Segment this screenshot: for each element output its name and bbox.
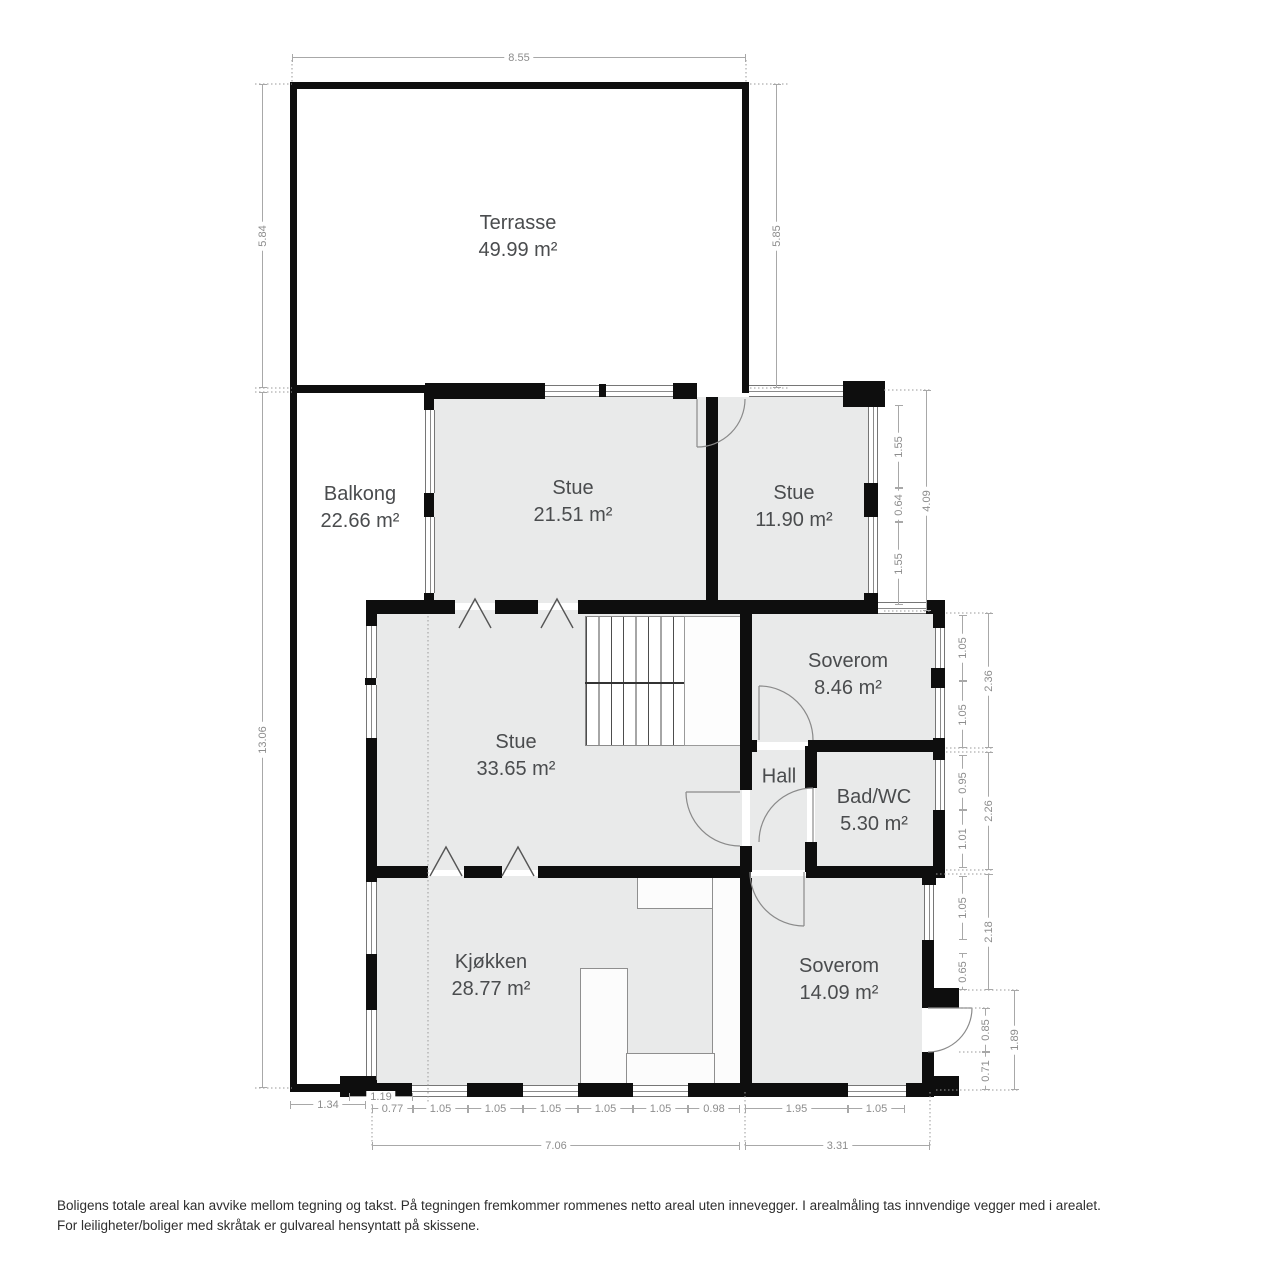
room-name: Hall [762,764,796,791]
dim-stue11-win1: 1.55 [898,405,899,488]
room-name: Soverom [799,953,879,980]
dim-bottom-098: 0.98 [688,1108,740,1109]
label-stue-21: Stue 21.51 m² [534,475,613,529]
dim-bad-win: 0.95 [962,755,963,810]
entry-door-opening [922,1008,934,1052]
wall-top-a [425,383,545,399]
wall-balkong-top [297,385,425,393]
room-area: 22.66 m² [321,508,400,535]
room-name: Stue [755,480,832,507]
wall-divider-stue33-a [740,613,752,790]
room-area: 5.30 m² [837,811,911,838]
wall-divider-stue21-stue11 [706,397,718,613]
dim-entry-total: 1.89 [1014,990,1015,1090]
staircase-divider [585,682,684,684]
kitchen-counter-right [712,877,743,1085]
dim-sov14-wall: 0.65 [962,953,963,990]
wall-right-sov8-mid [931,668,945,688]
dim-bottom-706: 7.06 [372,1145,740,1146]
dim-terrace-left: 5.84 [262,84,263,388]
wall-right-bad-bot [933,810,945,872]
wall-bottom-d [578,1083,633,1097]
wall-bottom-e [688,1083,848,1097]
dim-left-total: 13.06 [262,392,263,1088]
wall-entry-jamb-top [922,988,959,1008]
dim-stue11-total: 4.09 [926,390,927,611]
dim-bottom-105c: 1.05 [523,1108,578,1109]
dim-top: 8.55 [292,57,746,58]
dim-bottom-105f: 1.05 [848,1108,905,1109]
wall-left-bot-b [366,954,377,1010]
dim-bottom-119: 1.19 [349,1096,413,1097]
dim-terrace-right: 5.85 [776,84,777,388]
room-name: Terrasse [479,210,558,237]
wall-hall-bad-a [805,746,817,788]
room-name: Balkong [321,481,400,508]
window-left-mullion [365,678,376,685]
wall-bottom-f [906,1083,934,1097]
kitchen-counter-bottom [626,1053,715,1087]
dim-bottom-105e: 1.05 [633,1108,688,1109]
window-bottom-a [412,1085,467,1097]
wall-terrace-top [290,82,749,89]
window-left-mid-a [366,626,377,678]
room-area: 33.65 m² [477,756,556,783]
wall-stue21-left-a [424,393,434,410]
room-name: Bad/WC [837,784,911,811]
wall-top-b [673,383,697,399]
window-top-stue11 [749,385,843,397]
dim-sov8-win2: 1.05 [962,681,963,748]
wall-mid-b [495,600,538,614]
wall-right-sov8-bot [933,738,945,760]
wall-kjokken-sov14 [740,878,752,1085]
kitchen-counter-top [637,877,715,909]
room-name: Soverom [808,648,888,675]
room-area: 8.46 m² [808,675,888,702]
window-stue11-right-b [868,517,878,593]
dim-entry-below: 0.71 [985,1052,986,1090]
wall-terrace-left [290,82,297,1090]
wall-bottom-c [467,1083,523,1097]
dim-bad-wall: 1.01 [962,810,963,868]
label-stue-11: Stue 11.90 m² [755,480,832,534]
window-stue21-left-a [425,410,435,493]
window-stue21-left-b [425,517,435,593]
label-hall: Hall [762,764,796,791]
room-name: Kjøkken [452,949,531,976]
wall-terrace-right [742,82,749,393]
disclaimer-line-2: For leiligheter/boliger med skråtak er g… [57,1216,1101,1236]
wall-mid-a [366,600,455,614]
door-arc-entry [928,1008,972,1052]
window-bottom-d [848,1085,906,1097]
dim-entry-open: 0.85 [985,1008,986,1052]
wall-mid-e [926,600,945,614]
label-soverom-8: Soverom 8.46 m² [808,648,888,702]
wall-mid-c [578,600,745,614]
window-sov8-right-b [935,688,945,738]
window-left-bot-a [366,882,377,954]
room-name: Stue [534,475,613,502]
staircase-treads [585,616,685,746]
dim-bottom-331: 3.31 [745,1145,930,1146]
wall-stue11-right-mid [864,483,878,517]
dim-bad-total: 2.26 [988,752,989,870]
dim-stue11-win2: 1.55 [898,522,899,605]
label-bad: Bad/WC 5.30 m² [837,784,911,838]
dim-bottom-105a: 1.05 [413,1108,468,1109]
dim-bottom-105b: 1.05 [468,1108,523,1109]
room-area: 11.90 m² [755,507,832,534]
window-stue11-right-a [868,407,878,483]
label-soverom-14: Soverom 14.09 m² [799,953,879,1007]
wall-bot-h-a [366,866,428,878]
window-bottom-b [523,1085,578,1097]
room-area: 49.99 m² [479,237,558,264]
window-sov8-right-a [935,628,945,668]
dim-bottom-105d: 1.05 [578,1108,633,1109]
dim-sov14-win: 1.05 [962,876,963,940]
staircase-landing [684,616,744,746]
wall-bot-h-b [464,866,502,878]
disclaimer-line-1: Boligens totale areal kan avvike mellom … [57,1196,1101,1216]
room-name: Stue [477,729,556,756]
label-stue-33: Stue 33.65 m² [477,729,556,783]
window-top-stue21 [545,385,673,397]
room-area: 21.51 m² [534,502,613,529]
wall-left-mid-b [366,738,377,872]
wall-mid-d [743,600,878,614]
dim-stue11-wall: 0.64 [898,488,899,522]
dim-sov14-total: 2.18 [988,874,989,990]
room-area: 14.09 m² [799,980,879,1007]
wall-top-corner [843,381,885,407]
window-left-mid-b [366,685,377,738]
floorplan-canvas: Terrasse 49.99 m² Balkong 22.66 m² Stue … [0,0,1280,1280]
dim-sov8-win1: 1.05 [962,615,963,681]
label-balkong: Balkong 22.66 m² [321,481,400,535]
wall-sov8-bottom-b [808,740,945,752]
dim-bottom-077: 0.77 [372,1108,413,1109]
wall-right-sov14-mid [922,940,934,988]
label-kjokken: Kjøkken 28.77 m² [452,949,531,1003]
label-terrasse: Terrasse 49.99 m² [479,210,558,264]
dim-bottom-195: 1.95 [745,1108,848,1109]
wall-left-mid-a [366,600,377,626]
window-bottom-c [633,1085,688,1097]
room-area: 28.77 m² [452,976,531,1003]
window-sov14-right [924,885,934,940]
window-bad-right [935,760,945,810]
wall-right-sov14-top [922,872,936,885]
window-left-bot-b [366,1010,377,1080]
disclaimer-text: Boligens totale areal kan avvike mellom … [57,1196,1101,1236]
kitchen-island [580,968,628,1088]
wall-sov8-bottom-a [740,740,757,752]
dim-sov8-total: 2.36 [988,613,989,748]
wall-bot-h-c [538,866,751,878]
wall-right-sov8-top [933,613,945,628]
window-mullion [599,384,606,397]
dim-bottom-134: 1.34 [290,1104,366,1105]
wall-stue21-left-b [424,493,434,517]
